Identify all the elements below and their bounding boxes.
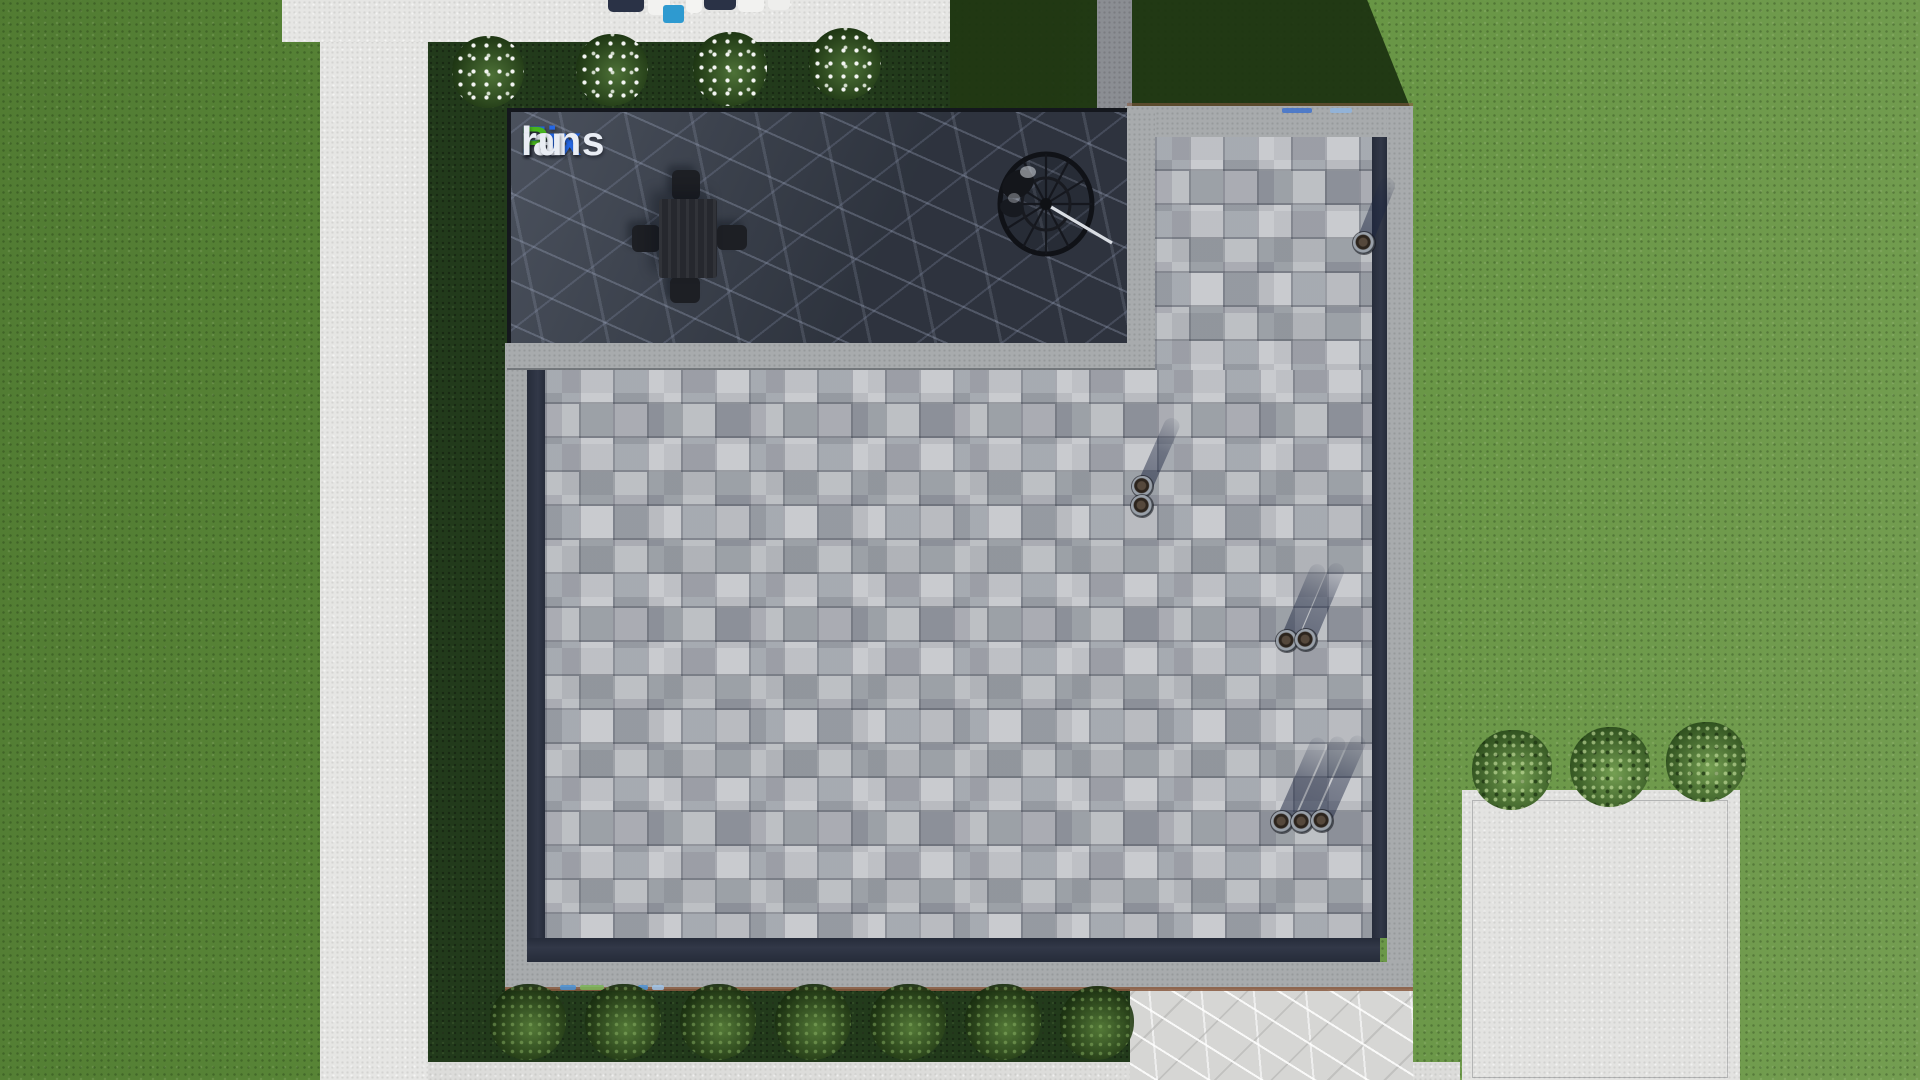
dining-chair-left bbox=[632, 225, 660, 252]
left-planting-bed bbox=[428, 42, 507, 990]
roof-vent-pipe bbox=[1291, 811, 1313, 833]
flowering-bush bbox=[576, 34, 648, 106]
patio-lounger bbox=[686, 0, 702, 13]
roof-shingles-main bbox=[545, 370, 1372, 938]
bottom-marble-path bbox=[1130, 985, 1413, 1080]
flowering-bush bbox=[809, 28, 881, 100]
left-walkway bbox=[320, 0, 428, 1080]
top-right-walkway-shadowed bbox=[1097, 0, 1132, 112]
dining-set bbox=[625, 165, 755, 305]
hedge-bush bbox=[775, 984, 851, 1060]
dining-chair-bottom bbox=[670, 277, 700, 303]
roof-shingles-top-right bbox=[1155, 137, 1372, 370]
trim-dash-top-2 bbox=[1330, 108, 1352, 113]
flowering-bush bbox=[693, 32, 767, 106]
trim-dash-top-1 bbox=[1282, 108, 1312, 113]
terrace-coping-horizontal bbox=[507, 343, 1155, 370]
green-bush bbox=[1570, 727, 1650, 807]
pool-towel-blue bbox=[663, 5, 684, 23]
trim-dash-bottom-1 bbox=[560, 985, 576, 990]
trim-dash-bottom-4 bbox=[652, 985, 664, 990]
green-bush bbox=[1666, 722, 1746, 802]
hedge-bush bbox=[585, 984, 661, 1060]
roof-vent-pipe bbox=[1311, 810, 1333, 832]
roof-gutter-right bbox=[1372, 137, 1387, 938]
terrace-coping-vertical bbox=[1127, 112, 1155, 370]
rust-edge-top-right bbox=[1127, 103, 1413, 106]
hedge-bush bbox=[680, 984, 756, 1060]
aerial-scene: FixPlans.ru bbox=[0, 0, 1920, 1080]
roof-parapet-right bbox=[1387, 106, 1413, 989]
roof-vent-pipe bbox=[1132, 476, 1153, 497]
roof-vent-pipe bbox=[1271, 811, 1293, 833]
roof-vent-pipe bbox=[1131, 495, 1153, 517]
roof-vent-pipe bbox=[1295, 629, 1317, 651]
patio-lounger bbox=[608, 0, 644, 12]
hedge-bush bbox=[1060, 986, 1134, 1060]
hanging-egg-chair bbox=[988, 146, 1118, 266]
dining-chair-right bbox=[717, 225, 747, 250]
right-concrete-pad bbox=[1462, 790, 1740, 1080]
building-shadow-on-lawn bbox=[945, 0, 1412, 112]
dining-chair-top bbox=[672, 170, 700, 200]
roof-parapet-top bbox=[1125, 106, 1413, 137]
patio-lounger bbox=[738, 0, 764, 12]
hedge-bush bbox=[965, 984, 1041, 1060]
flowering-bush bbox=[452, 36, 524, 108]
dining-table bbox=[659, 199, 717, 278]
roof-vent-pipe bbox=[1353, 232, 1375, 254]
roof-gutter-left bbox=[527, 370, 545, 962]
hedge-bush bbox=[870, 984, 946, 1060]
patio-lounger bbox=[768, 0, 790, 10]
roof-parapet-left bbox=[505, 343, 527, 989]
roof-gutter-bottom bbox=[527, 938, 1380, 962]
pad-border-line bbox=[1472, 800, 1728, 1078]
hedge-bush bbox=[490, 984, 566, 1060]
green-bush bbox=[1472, 730, 1552, 810]
watermark-seg-ru: ru bbox=[521, 118, 563, 165]
trim-dash-bottom-2 bbox=[580, 985, 604, 990]
patio-lounger bbox=[704, 0, 736, 10]
